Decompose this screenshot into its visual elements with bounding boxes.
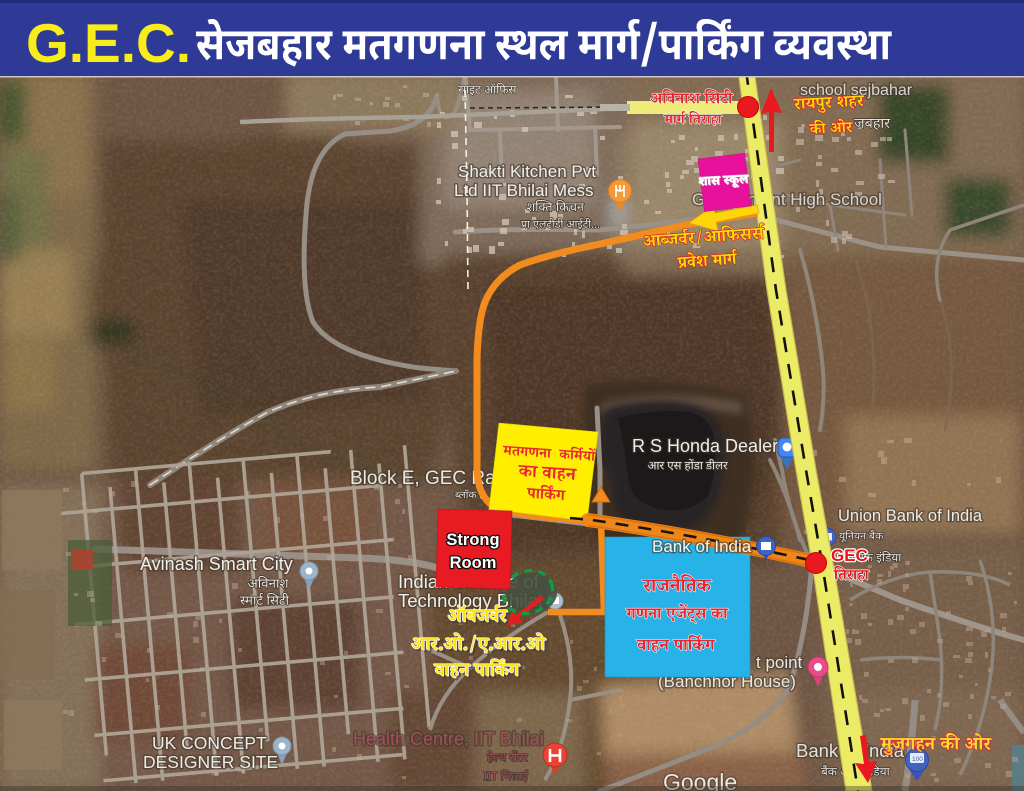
svg-text:Health Centre, IIT Bhilai: Health Centre, IIT Bhilai bbox=[353, 729, 544, 749]
svg-text:DESIGNER SITE: DESIGNER SITE bbox=[143, 752, 278, 772]
svg-text:R S Honda Dealer: R S Honda Dealer bbox=[632, 436, 778, 456]
svg-text:Shakti Kitchen Pvt: Shakti Kitchen Pvt bbox=[458, 162, 596, 181]
svg-text:Ltd IIT Bhilai Mess: Ltd IIT Bhilai Mess bbox=[454, 181, 594, 200]
svg-text:UK CONCEPT: UK CONCEPT bbox=[152, 733, 267, 753]
svg-text:100: 100 bbox=[912, 756, 923, 763]
svg-text:Strong: Strong bbox=[446, 531, 499, 549]
svg-text:t point: t point bbox=[756, 653, 803, 672]
svg-text:G.E.C.: G.E.C. bbox=[26, 12, 191, 74]
svg-text:Union Bank of India: Union Bank of India bbox=[838, 507, 983, 525]
svg-text:Room: Room bbox=[450, 554, 497, 572]
svg-text:Bank of India: Bank of India bbox=[652, 537, 752, 556]
svg-text:Avinash Smart City: Avinash Smart City bbox=[140, 554, 293, 574]
svg-text:GEC: GEC bbox=[831, 546, 868, 565]
